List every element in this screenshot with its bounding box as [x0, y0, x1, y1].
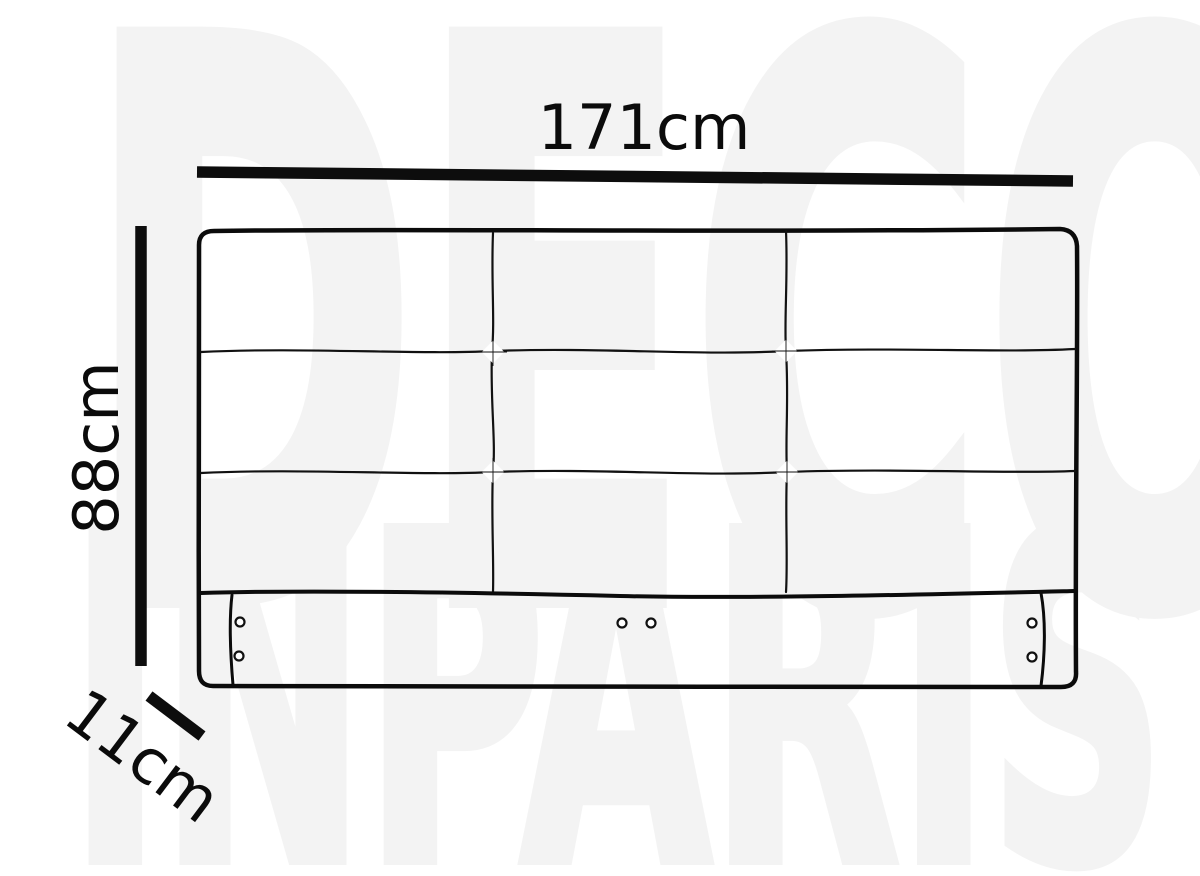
screw-hole — [1028, 619, 1037, 628]
screw-hole — [1028, 653, 1037, 662]
tufting-seam-vertical-left — [492, 233, 494, 592]
diagram-canvas: DECO INPARIS — [0, 0, 1200, 876]
screw-hole — [647, 619, 656, 628]
screw-hole — [235, 652, 244, 661]
width-dimension-label: 171cm — [538, 91, 751, 164]
height-dimension-label: 88cm — [60, 361, 133, 534]
screw-hole — [236, 618, 245, 627]
screw-hole — [618, 619, 627, 628]
